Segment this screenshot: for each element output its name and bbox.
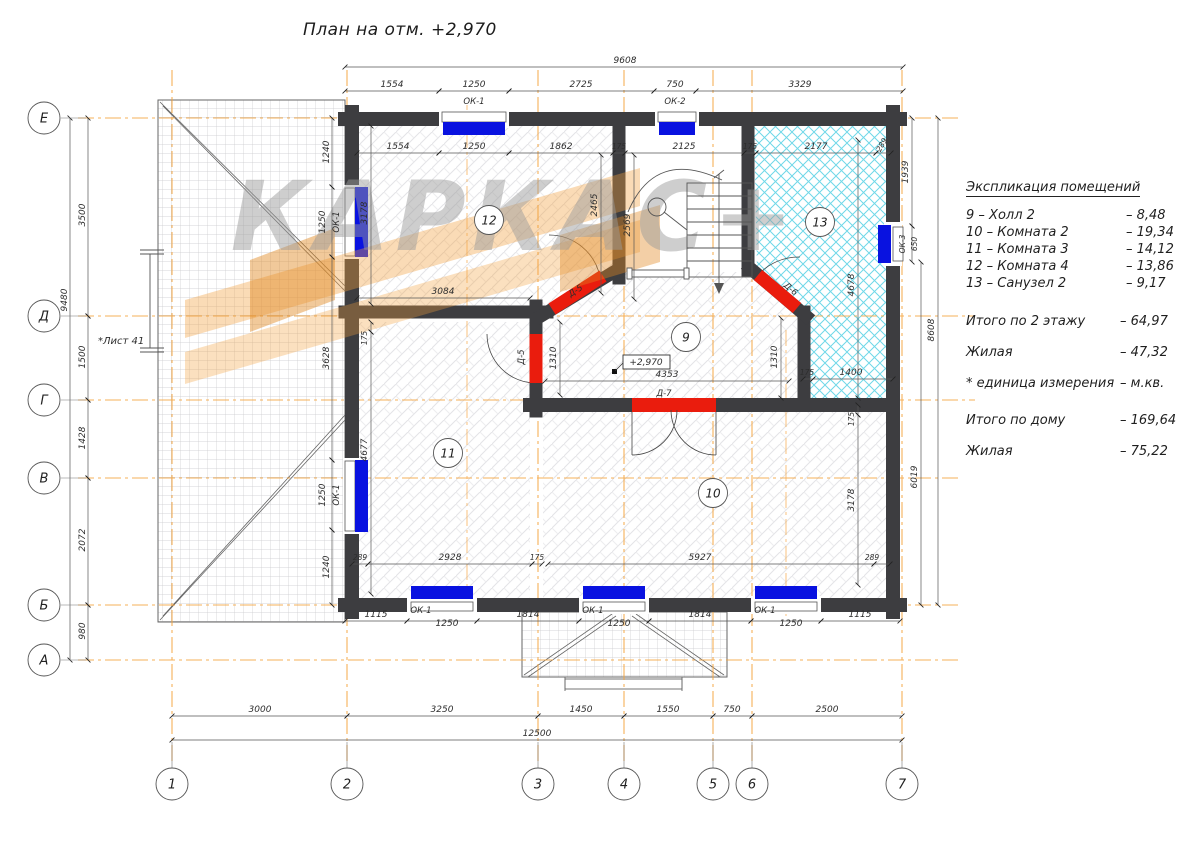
schedule-total-row: * единица измерения – м.кв. xyxy=(966,376,1184,391)
dim-inner-top: 1250 xyxy=(463,142,486,152)
dim-r12: 2465 xyxy=(590,193,600,216)
dim-left-wall: 1250 xyxy=(318,210,328,233)
dim-left-wall: 1250 xyxy=(318,483,328,506)
dim-bottom-overall: 12500 xyxy=(523,729,552,739)
schedule-total-value: – 75,22 xyxy=(1120,444,1184,459)
window-label-ok1: ОК-1 xyxy=(463,97,484,107)
axis-label-col: 2 xyxy=(343,778,351,793)
window-ok2-top xyxy=(655,110,699,135)
window-ok1-left-lower xyxy=(343,458,368,534)
dim-r10: 5927 xyxy=(689,553,712,563)
dim-right-top: 1939 xyxy=(901,160,911,183)
dim-r12: 3178 xyxy=(360,201,370,224)
window-label-ok2: ОК-2 xyxy=(664,97,685,107)
schedule-room-area: – 14,12 xyxy=(1126,241,1184,258)
window-label-ok1: ОК-1 xyxy=(410,606,431,616)
dim-r9: 1310 xyxy=(770,345,780,368)
window-label-ok1: ОК-1 xyxy=(332,484,342,505)
schedule-row: 13 – Санузел 2 – 9,17 xyxy=(966,275,1184,292)
schedule-row: 10 – Комната 2 – 19,34 xyxy=(966,224,1184,241)
schedule-total-row: Жилая – 47,32 xyxy=(966,345,1184,360)
window-label-ok1: ОК-1 xyxy=(582,606,603,616)
schedule-room-name: 10 – Комната 2 xyxy=(966,224,1126,241)
dim-inner-top: 175 xyxy=(743,142,758,151)
floor-plan-sheet: План на отм. +2,970 xyxy=(0,0,1200,848)
schedule-room-name: 9 – Холл 2 xyxy=(966,207,1126,224)
window-label-ok3: ОК-3 xyxy=(898,234,907,253)
level-mark-value: +2,970 xyxy=(629,358,663,368)
dim-left: 2072 xyxy=(78,528,88,551)
dim-r9: 4353 xyxy=(656,370,679,380)
axis-label-col: 5 xyxy=(709,778,717,793)
schedule-row: 9 – Холл 2 – 8,48 xyxy=(966,207,1184,224)
axis-label-col: 6 xyxy=(748,778,756,793)
room-schedule: Экспликация помещений 9 – Холл 2 – 8,48 … xyxy=(966,180,1184,459)
dim-bottom-axes: 1550 xyxy=(657,705,680,715)
dim-inner-top: 2177 xyxy=(805,142,828,152)
dim-bottom-axes: 2500 xyxy=(816,705,839,715)
room-number-12: 12 xyxy=(481,214,496,228)
schedule-room-name: 11 – Комната 3 xyxy=(966,241,1126,258)
dim-r13: 1400 xyxy=(840,368,863,378)
room-number-13: 13 xyxy=(812,216,827,230)
dim-r11: 175 xyxy=(530,553,545,562)
dim-left-overall: 9480 xyxy=(60,288,70,311)
schedule-total-value: – м.кв. xyxy=(1120,376,1184,391)
dim-r10: 175 xyxy=(847,412,856,427)
room-number-9: 9 xyxy=(682,331,690,345)
dim-r11: 175 xyxy=(360,331,369,346)
dim-left: 980 xyxy=(78,622,88,639)
schedule-total-name: Жилая xyxy=(966,444,1120,459)
axis-label-col: 4 xyxy=(620,778,628,793)
schedule-total-value: – 47,32 xyxy=(1120,345,1184,360)
dim-right-ok3: 650 xyxy=(910,237,919,252)
dim-bottom-wall: 1115 xyxy=(849,610,872,620)
schedule-total-name: Жилая xyxy=(966,345,1120,360)
dim-r13: 4678 xyxy=(847,273,857,296)
dim-right-overall: 8608 xyxy=(927,318,937,341)
dim-top-overall: 9608 xyxy=(614,56,637,66)
dim-bottom-wall: 1115 xyxy=(365,610,388,620)
dim-inner-top: 1554 xyxy=(387,142,410,152)
schedule-room-name: 13 – Санузел 2 xyxy=(966,275,1126,292)
dim-bottom-axes: 1450 xyxy=(570,705,593,715)
dim-left-wall: 3628 xyxy=(322,346,332,369)
schedule-total-row: Итого по дому – 169,64 xyxy=(966,413,1184,428)
dim-bottom-axes: 3000 xyxy=(249,705,272,715)
schedule-row: 12 – Комната 4 – 13,86 xyxy=(966,258,1184,275)
dim-top: 1250 xyxy=(463,80,486,90)
dim-bottom-axes: 750 xyxy=(723,705,740,715)
dim-left-wall: 1240 xyxy=(322,140,332,163)
schedule-total-row: Итого по 2 этажу – 64,97 xyxy=(966,314,1184,329)
dim-bottom-axes: 3250 xyxy=(431,705,454,715)
dim-r9: 1310 xyxy=(549,346,559,369)
axis-label-row: Б xyxy=(40,599,49,614)
dim-bottom-wall: 1250 xyxy=(608,619,631,629)
room-schedule-title: Экспликация помещений xyxy=(966,180,1140,197)
dim-r10: 289 xyxy=(865,553,880,562)
dim-top: 1554 xyxy=(381,80,404,90)
dim-r12: 3084 xyxy=(432,287,455,297)
sheet-note: *Лист 41 xyxy=(98,336,144,347)
axis-label-col: 1 xyxy=(168,778,176,793)
dim-r10: 3178 xyxy=(847,488,857,511)
window-label-ok1: ОК-1 xyxy=(332,211,342,232)
dim-inner-top: 1862 xyxy=(550,142,573,152)
schedule-total-name: Итого по 2 этажу xyxy=(966,314,1120,329)
dim-left: 1428 xyxy=(78,426,88,449)
page-title: План на отм. +2,970 xyxy=(303,20,497,40)
door-label-d5: Д-5 xyxy=(517,349,527,365)
dim-top: 2725 xyxy=(570,80,593,90)
door-label-d7: Д-7 xyxy=(655,389,672,399)
schedule-total-row: Жилая – 75,22 xyxy=(966,444,1184,459)
dim-r11: 2928 xyxy=(439,553,462,563)
dim-r12: 2569 xyxy=(623,213,633,236)
schedule-room-area: – 9,17 xyxy=(1126,275,1184,292)
axis-label-col: 7 xyxy=(898,778,907,793)
room-number-11: 11 xyxy=(440,447,455,461)
dim-top: 3329 xyxy=(789,80,812,90)
dim-bottom-wall: 1250 xyxy=(780,619,803,629)
dim-inner-top: 175 xyxy=(612,142,627,151)
dim-bottom-wall: 1814 xyxy=(689,610,712,620)
window-ok1-top xyxy=(439,110,509,135)
schedule-row: 11 – Комната 3 – 14,12 xyxy=(966,241,1184,258)
dim-r13: 175 xyxy=(800,368,815,377)
room-number-10: 10 xyxy=(705,487,721,501)
dim-bottom-wall: 1250 xyxy=(436,619,459,629)
schedule-total-name: Итого по дому xyxy=(966,413,1120,428)
window-label-ok1: ОК-1 xyxy=(754,606,775,616)
axis-label-col: 3 xyxy=(534,778,542,793)
dim-right-lower: 6019 xyxy=(910,465,920,488)
dim-left: 1500 xyxy=(78,345,88,368)
schedule-room-area: – 13,86 xyxy=(1126,258,1184,275)
axis-label-row: А xyxy=(39,654,49,669)
dim-r11: 289 xyxy=(353,553,368,562)
dim-left-wall: 1240 xyxy=(322,555,332,578)
axis-label-row: В xyxy=(40,472,49,487)
dim-left: 3500 xyxy=(78,203,88,226)
schedule-room-area: – 19,34 xyxy=(1126,224,1184,241)
schedule-room-name: 12 – Комната 4 xyxy=(966,258,1126,275)
schedule-total-value: – 169,64 xyxy=(1120,413,1184,428)
schedule-total-name: * единица измерения xyxy=(966,376,1120,391)
schedule-room-area: – 8,48 xyxy=(1126,207,1184,224)
schedule-total-value: – 64,97 xyxy=(1120,314,1184,329)
dim-r11: 4677 xyxy=(360,438,370,461)
dim-top: 750 xyxy=(666,80,683,90)
dim-inner-top: 2125 xyxy=(673,142,696,152)
axis-label-row: Д xyxy=(38,310,49,325)
axis-label-row: Е xyxy=(40,112,49,127)
stair-landing-edge xyxy=(629,270,686,277)
dim-bottom-wall: 1814 xyxy=(517,610,540,620)
